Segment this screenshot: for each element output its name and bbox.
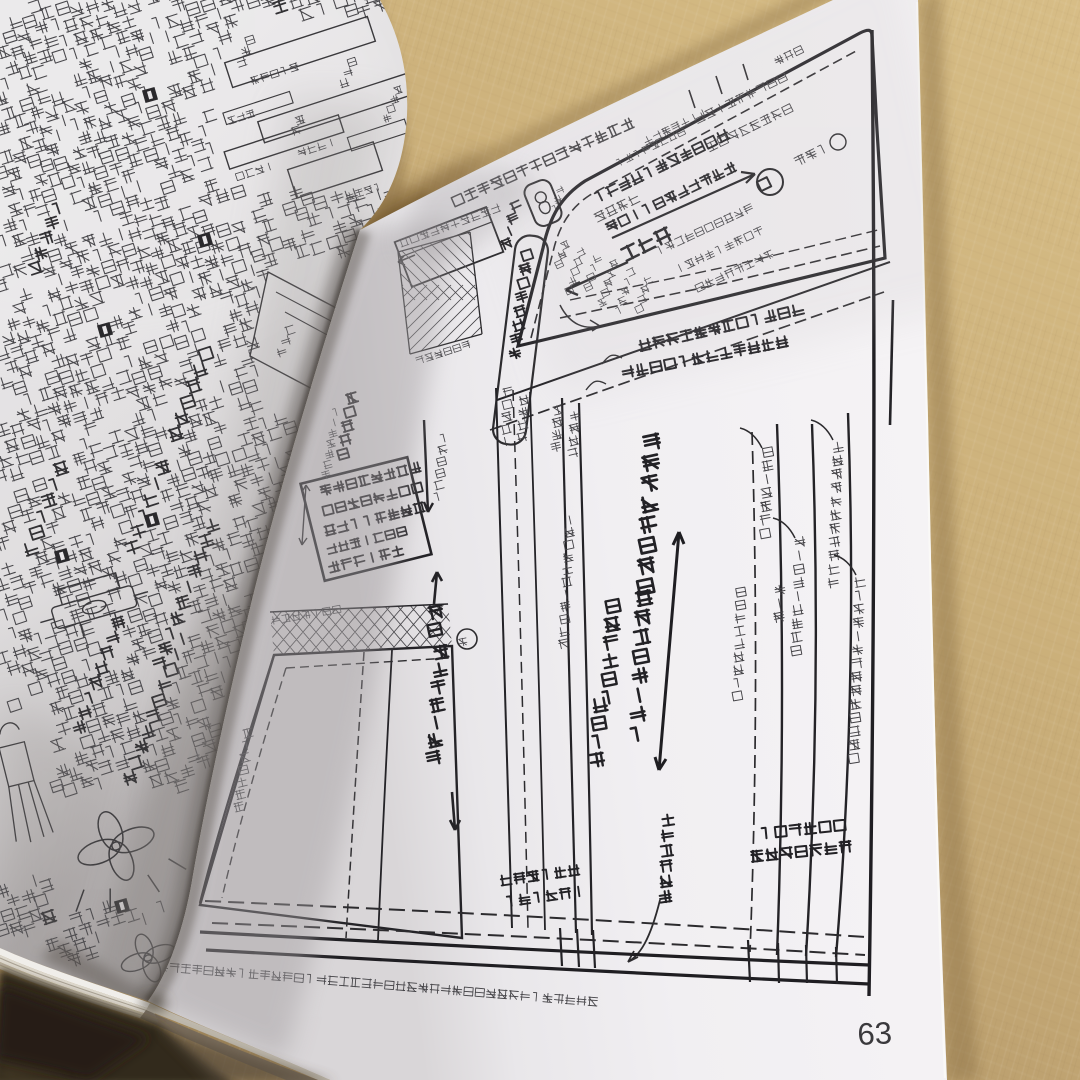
svg-text:63: 63 bbox=[857, 1015, 893, 1052]
